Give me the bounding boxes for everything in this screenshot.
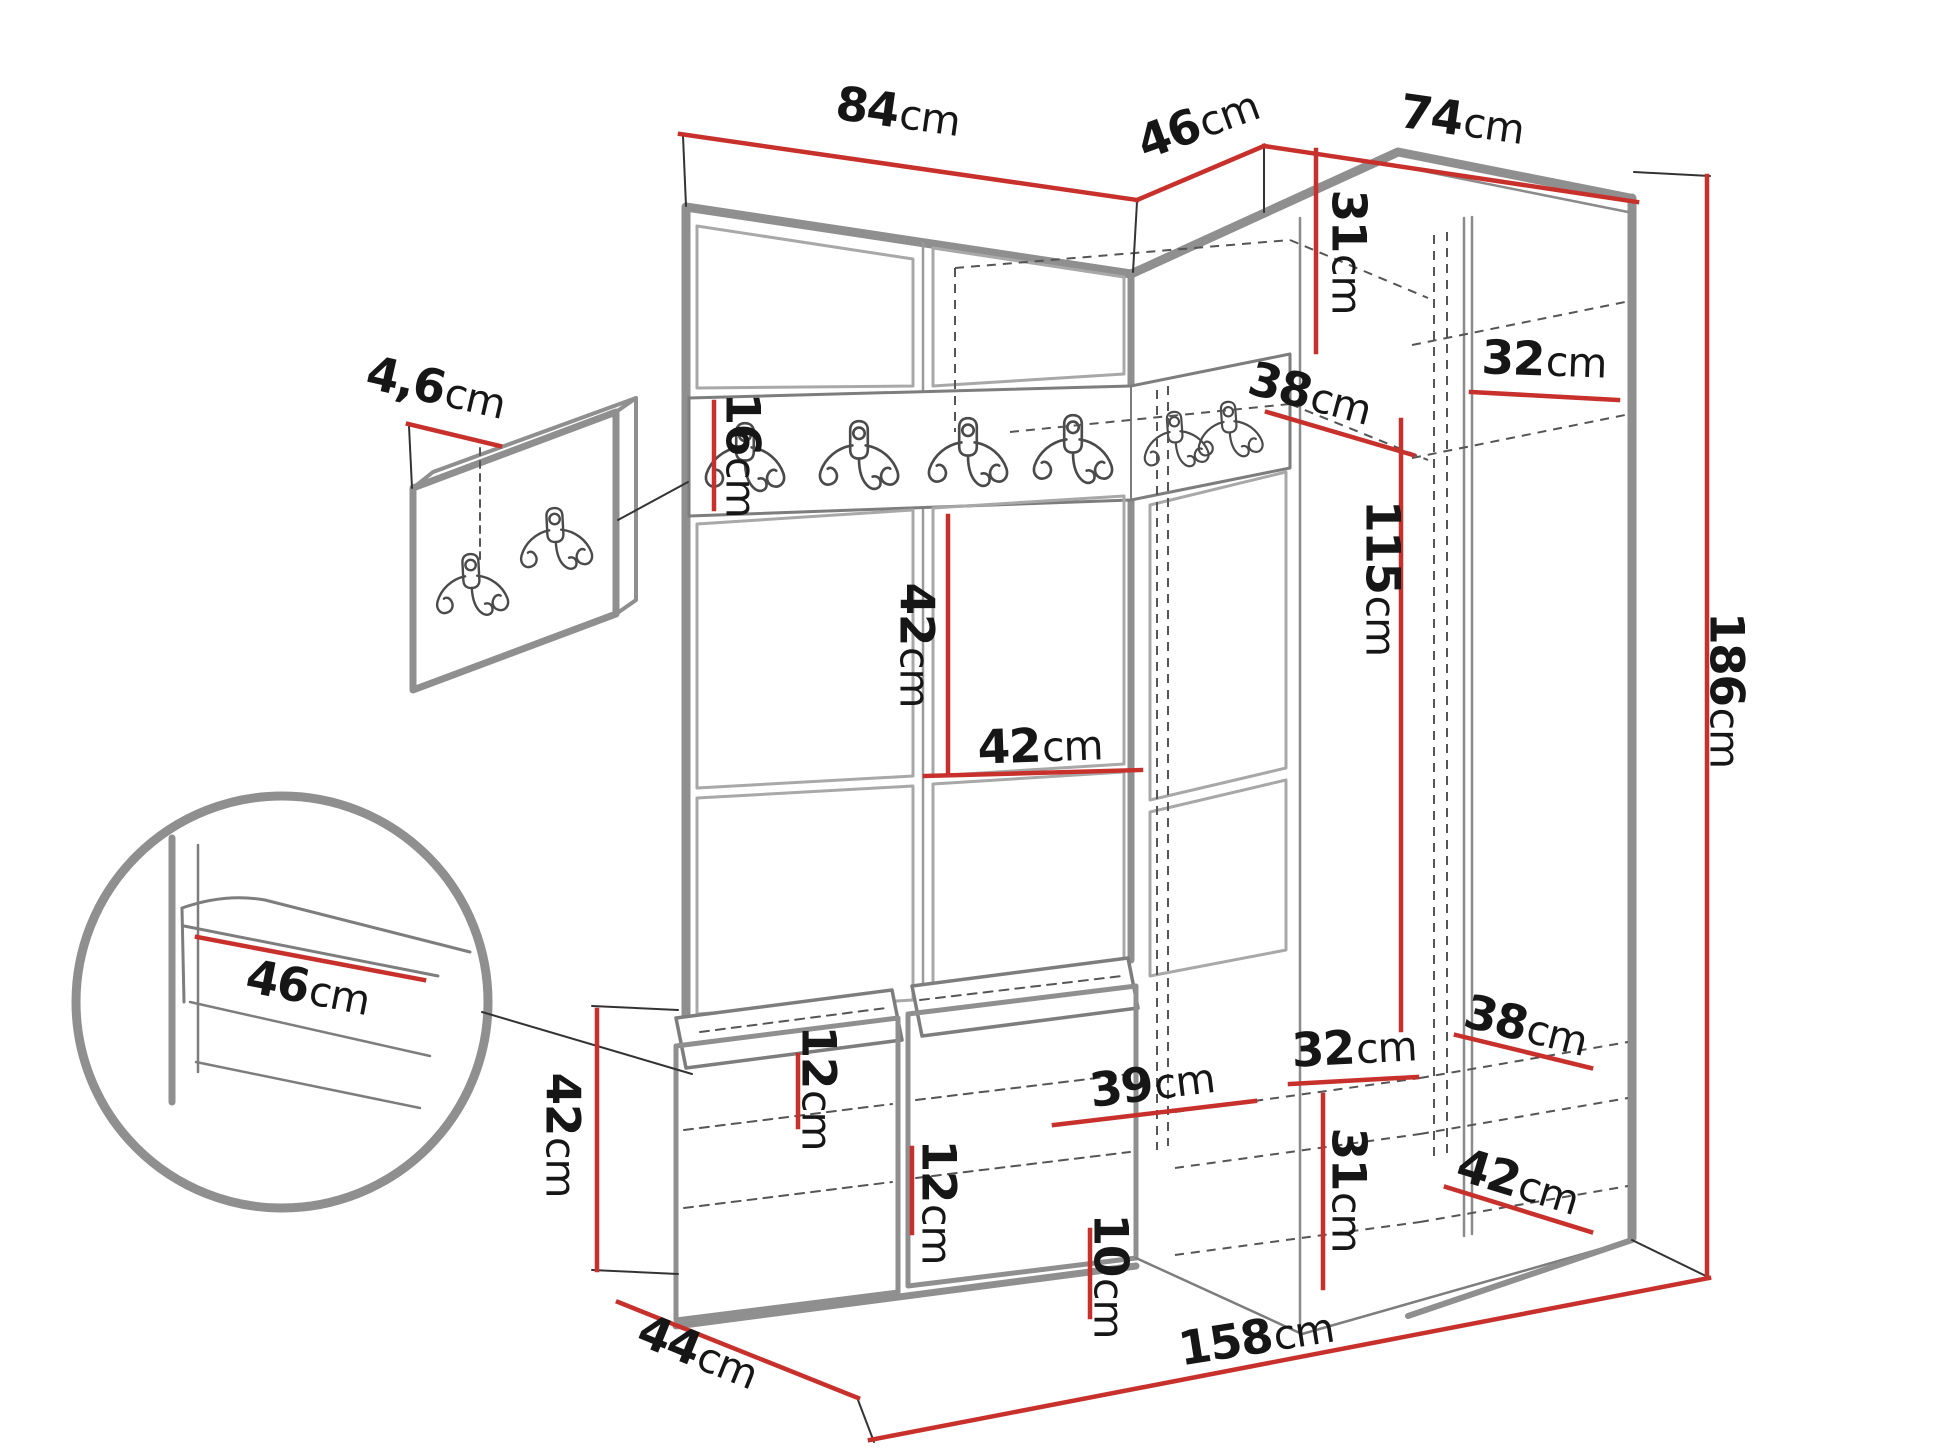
- dim-label-31cm-bottom: 31cm: [1321, 1128, 1376, 1253]
- dim-line-32-top: [1471, 392, 1618, 400]
- dim-line-84: [680, 134, 1137, 200]
- dim-label-42cm-vertical: 42cm: [889, 583, 944, 708]
- upholstered-panels: [697, 226, 1286, 1014]
- dim-label-10cm: 10cm: [1083, 1214, 1138, 1339]
- leader-line: [618, 482, 688, 520]
- dim-label-115cm: 115cm: [1355, 500, 1410, 656]
- dim-label-32cm-bottom: 32cm: [1290, 1017, 1418, 1078]
- dim-label-32cm-top: 32cm: [1481, 330, 1608, 389]
- furniture-dimension-diagram: 84cm 46cm 74cm 4,6cm 16cm 42cm 42cm 31cm…: [0, 0, 1940, 1456]
- wall-panel-group: [413, 398, 636, 690]
- dim-label-12cm-b: 12cm: [911, 1140, 966, 1265]
- bench-cushion: [676, 990, 902, 1068]
- bench-cushion: [912, 958, 1138, 1036]
- dim-label-42cm-horizontal: 42cm: [977, 716, 1104, 775]
- dim-label-12cm-a: 12cm: [791, 1026, 846, 1151]
- dim-label-31cm-top: 31cm: [1321, 190, 1376, 315]
- leader-line: [482, 1012, 692, 1074]
- dim-label-186cm: 186cm: [1699, 612, 1754, 768]
- dim-label-16cm: 16cm: [715, 393, 770, 518]
- dim-label-42cm-bench: 42cm: [535, 1073, 590, 1198]
- diagram-canvas: [0, 0, 1940, 1456]
